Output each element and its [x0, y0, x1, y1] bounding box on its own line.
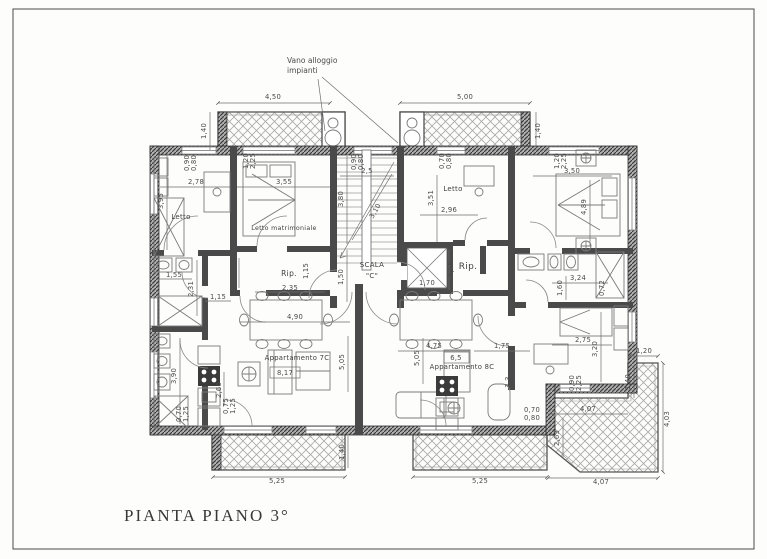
dimension-label: 1,40	[534, 123, 542, 139]
dimension-label: 0,80	[524, 414, 540, 422]
page-title: PIANTA PIANO 3°	[124, 506, 290, 525]
room-label: Letto	[443, 185, 462, 193]
dimension-label: 5,25	[472, 477, 488, 485]
room-label: Rip.	[281, 269, 297, 278]
room-label: Appartamento 8C	[430, 363, 495, 371]
dimension-label: 1,75	[494, 342, 510, 350]
dimension-label: 4,75	[426, 342, 442, 350]
dimension-label: 5,25	[269, 477, 285, 485]
balcony-top-right	[400, 112, 530, 150]
dimension-label: 2,78	[188, 178, 204, 186]
dimension-label: 5,00	[457, 93, 473, 101]
dimension-label: 4,90	[287, 313, 303, 321]
dimension-label: 8,17	[277, 369, 293, 377]
room-label: "C"	[366, 272, 378, 280]
room-label: Rip.	[459, 262, 478, 272]
room-label: Letto matrimoniale	[251, 225, 316, 232]
dimension-label: 2,75	[575, 336, 591, 344]
dimension-label: 3,24	[570, 274, 586, 282]
dimension-label: 1,40	[624, 374, 632, 390]
dimension-label: 0,80	[357, 154, 365, 170]
dimension-label: 1,50	[447, 261, 455, 277]
floor-plan-drawing: 4,505,001,401,402,783,553,951,202,250,90…	[0, 0, 767, 559]
dimension-label: 0,80	[445, 153, 453, 169]
dimension-label: 4,03	[663, 411, 671, 427]
room-label: Letto	[171, 213, 190, 221]
dimension-label: 0,80	[190, 155, 198, 171]
dimension-label: 1,15	[210, 293, 226, 301]
vano-impianti-right	[400, 112, 424, 150]
dimension-label: 4,89	[580, 199, 588, 215]
dimension-label: 1,25	[182, 406, 190, 422]
dimension-label: 5,05	[413, 350, 421, 366]
dimension-label: 1,20	[636, 347, 652, 355]
dimension-label: 4,50	[265, 93, 281, 101]
dimension-label: 1,40	[338, 444, 346, 460]
annotation-line1: Vano alloggio	[287, 56, 338, 65]
room-label: SCALA	[360, 261, 384, 269]
dimension-label: 4,07	[593, 478, 609, 486]
dimension-label: 3,90	[170, 368, 178, 384]
balcony-bottom-middle	[413, 432, 547, 470]
dimension-label: 6,5	[450, 354, 461, 362]
dimension-label: 2,60	[215, 382, 223, 398]
balcony-top-left	[218, 112, 345, 150]
dimension-label: 2,25	[575, 375, 583, 391]
dimension-label: 1,15	[302, 263, 310, 279]
dimension-label: 3,51	[427, 190, 435, 206]
dimension-label: 1,50	[337, 269, 345, 285]
room-label: Appartamento 7C	[265, 354, 330, 362]
dimension-label: 2,63	[553, 430, 561, 446]
dimension-label: 3,20	[591, 341, 599, 357]
scanned-floor-plan-page: 4,505,001,401,402,783,553,951,202,250,90…	[0, 0, 767, 559]
dimension-label: 3,3	[504, 376, 512, 387]
dimension-label: 1,25	[229, 398, 237, 414]
dimension-label: 1,55	[166, 271, 182, 279]
dimension-label: 0,70	[524, 406, 540, 414]
dimension-label: 3,55	[276, 178, 292, 186]
dimension-label: 1,60	[556, 280, 564, 296]
dimension-label: 2,31	[187, 281, 195, 297]
dimension-label: 4,07	[580, 405, 596, 413]
dimension-label: 0,72	[598, 280, 606, 296]
balcony-bottom-left	[212, 432, 345, 470]
dimension-label: 5,05	[338, 354, 346, 370]
dimension-label: 1,70	[419, 279, 435, 287]
annotation-line2: impianti	[287, 66, 318, 75]
dimension-label: 2,35	[282, 284, 298, 292]
dimension-label: 2,25	[249, 153, 257, 169]
dimension-label: 2,25	[560, 153, 568, 169]
balcony-bottom-right	[547, 363, 658, 472]
dimension-label: 1,16	[229, 264, 237, 280]
dimension-label: 1,40	[200, 123, 208, 139]
vano-impianti-left	[322, 112, 345, 150]
dimension-label: 2,96	[441, 206, 457, 214]
dimension-label: 3,95	[157, 193, 165, 209]
dimension-label: 3,80	[337, 191, 345, 207]
